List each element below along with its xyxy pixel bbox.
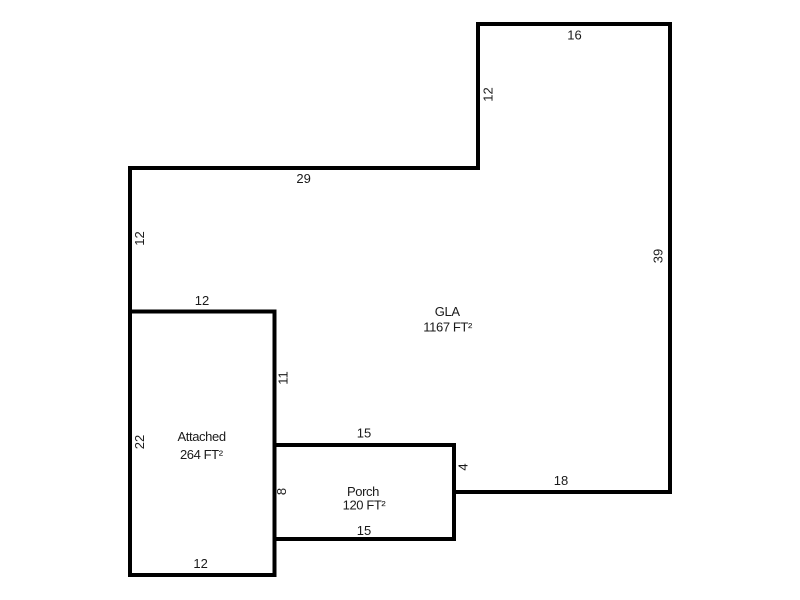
svg-text:4: 4 <box>456 463 471 470</box>
svg-text:15: 15 <box>357 523 371 538</box>
svg-text:12: 12 <box>132 231 147 245</box>
svg-text:1167 FT²: 1167 FT² <box>423 319 473 334</box>
svg-text:120 FT²: 120 FT² <box>343 497 387 512</box>
svg-text:12: 12 <box>193 556 207 571</box>
svg-text:12: 12 <box>195 293 209 308</box>
svg-text:15: 15 <box>357 426 371 441</box>
svg-text:16: 16 <box>567 28 581 43</box>
svg-text:8: 8 <box>274 488 289 495</box>
svg-text:264 FT²: 264 FT² <box>180 447 224 462</box>
svg-text:Attached: Attached <box>178 429 226 444</box>
svg-text:18: 18 <box>554 473 568 488</box>
svg-text:29: 29 <box>296 171 310 186</box>
svg-text:11: 11 <box>276 371 291 385</box>
svg-text:GLA: GLA <box>435 304 461 319</box>
svg-text:22: 22 <box>132 435 147 449</box>
svg-text:12: 12 <box>481 87 496 101</box>
svg-text:39: 39 <box>651 249 666 263</box>
